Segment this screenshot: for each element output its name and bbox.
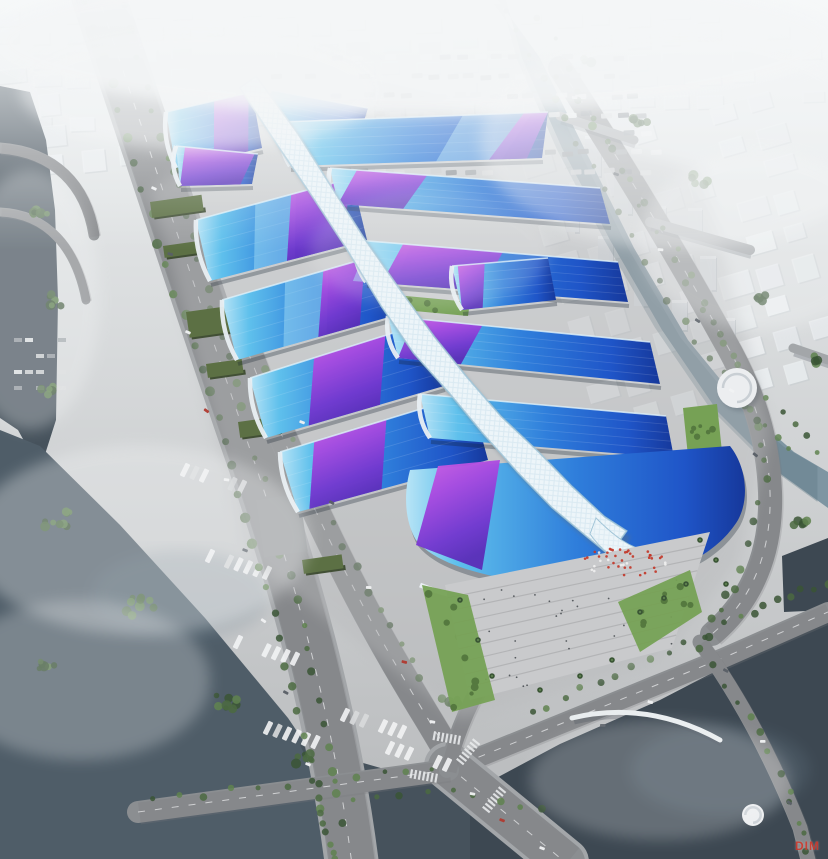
tree xyxy=(338,819,346,827)
tree xyxy=(749,517,757,525)
tree xyxy=(530,709,536,715)
tree xyxy=(721,619,727,625)
tree xyxy=(322,828,329,835)
plaza-figure xyxy=(623,625,625,627)
tree xyxy=(288,682,296,690)
tree xyxy=(745,540,752,547)
plaza-figure xyxy=(516,676,518,678)
tree xyxy=(708,614,716,622)
tree xyxy=(200,793,208,801)
scene-canvas xyxy=(0,0,828,859)
tree xyxy=(150,796,155,801)
tree xyxy=(751,610,759,618)
haze-cloud xyxy=(310,190,550,310)
crowd-dot xyxy=(619,548,622,551)
tree xyxy=(517,804,523,810)
crowd-dot xyxy=(644,572,647,575)
crowd-dot xyxy=(664,561,667,564)
tree xyxy=(759,602,767,610)
crowd-dot xyxy=(647,550,650,553)
crowd-dot xyxy=(612,562,615,565)
tree xyxy=(395,792,402,799)
crowd-dot xyxy=(629,552,632,555)
crowd-dot xyxy=(651,557,654,560)
plaza-figure xyxy=(488,630,490,632)
tree xyxy=(325,743,333,751)
plaza-figure xyxy=(576,606,578,608)
crowd-dot xyxy=(599,559,602,562)
garden-tree xyxy=(687,602,693,608)
garden-tree xyxy=(425,590,433,598)
crowd-dot xyxy=(606,549,609,552)
tree xyxy=(315,794,322,801)
tree xyxy=(755,500,760,505)
tree xyxy=(774,595,782,603)
courtyard-tree xyxy=(690,430,694,434)
plaza-figure xyxy=(509,675,511,677)
tree xyxy=(815,450,820,455)
crowd-dot xyxy=(593,565,596,568)
tree xyxy=(291,758,301,768)
tree xyxy=(276,635,283,642)
tree xyxy=(316,697,322,703)
palm-crown xyxy=(611,659,613,661)
palm-crown xyxy=(663,597,665,599)
tree xyxy=(709,661,716,668)
palm-crown xyxy=(491,675,493,677)
tree xyxy=(598,679,605,686)
tree xyxy=(811,587,817,593)
tree xyxy=(801,830,806,835)
tree xyxy=(722,684,727,689)
garden-tree xyxy=(681,601,688,608)
tree xyxy=(332,779,337,784)
plaza-figure xyxy=(501,589,503,591)
tree xyxy=(320,721,327,728)
tree xyxy=(763,475,771,483)
crowd-dot xyxy=(632,555,635,558)
tree xyxy=(309,778,315,784)
plaza-figure xyxy=(513,595,515,597)
tree xyxy=(307,667,315,675)
crowd-dot xyxy=(598,555,601,558)
tree xyxy=(320,820,326,826)
tree xyxy=(721,591,730,600)
tree xyxy=(736,565,744,573)
tree xyxy=(304,646,309,651)
garden-tree xyxy=(444,619,450,625)
crowd-dot xyxy=(653,566,656,569)
plaza-figure xyxy=(514,640,516,642)
tree xyxy=(285,783,292,790)
crowd-dot xyxy=(629,566,632,569)
crowd-dot xyxy=(606,551,609,554)
tree xyxy=(576,684,583,691)
crowd-dot xyxy=(607,559,610,562)
tree xyxy=(302,623,307,628)
garden-tree xyxy=(640,622,646,628)
tree xyxy=(803,432,810,439)
tree xyxy=(786,446,791,451)
tree xyxy=(735,700,740,705)
plaza-figure xyxy=(526,684,528,686)
crowd-dot xyxy=(617,565,620,568)
garden-tree xyxy=(461,654,468,661)
plaza-figure xyxy=(608,598,610,600)
crowd-dot xyxy=(605,555,608,558)
tree xyxy=(214,693,220,699)
tree xyxy=(788,789,794,795)
tree xyxy=(351,797,356,802)
tree xyxy=(681,639,687,645)
tree xyxy=(756,728,764,736)
palm-crown xyxy=(699,539,701,541)
tree xyxy=(719,608,724,613)
tree xyxy=(353,774,361,782)
plaza-figure xyxy=(671,643,673,645)
plaza-figure xyxy=(483,598,485,600)
crowd-dot xyxy=(623,574,626,577)
tree xyxy=(702,635,708,641)
garden-tree xyxy=(471,683,479,691)
plaza-figure xyxy=(560,613,562,615)
haze-cloud xyxy=(530,720,790,840)
palm-crown xyxy=(579,675,581,677)
crowd-dot xyxy=(660,555,663,558)
tree xyxy=(797,586,804,593)
crowd-dot xyxy=(648,556,651,559)
tree xyxy=(790,521,799,530)
tree xyxy=(374,794,379,799)
tree xyxy=(162,261,169,268)
plaza-figure xyxy=(548,600,550,602)
tree xyxy=(228,785,234,791)
crowd-dot xyxy=(649,554,652,557)
plaza-figure xyxy=(555,615,557,617)
crowd-dot xyxy=(586,556,589,559)
tree xyxy=(331,850,337,856)
tree xyxy=(272,610,279,617)
tree xyxy=(169,290,177,298)
crowd-dot xyxy=(626,562,629,565)
crowd-dot xyxy=(584,557,587,560)
tree xyxy=(305,749,315,759)
crowd-dot xyxy=(607,566,610,569)
garden-tree xyxy=(677,583,684,590)
tree xyxy=(317,810,324,817)
tree xyxy=(293,707,301,715)
aerial-rendering-exhibition-center: DIM xyxy=(0,0,828,859)
palm-crown xyxy=(459,599,461,601)
tree xyxy=(543,705,550,712)
tree xyxy=(696,645,704,653)
palm-crown xyxy=(539,689,541,691)
crowd-dot xyxy=(593,551,596,554)
crowd-dot xyxy=(614,555,617,558)
car xyxy=(366,586,372,589)
tree xyxy=(430,767,434,771)
tree xyxy=(797,821,802,826)
tree xyxy=(301,732,308,739)
tree xyxy=(328,767,337,776)
palm-crown xyxy=(685,583,687,585)
crowd-dot xyxy=(627,549,630,552)
tree xyxy=(315,780,322,787)
tree xyxy=(425,789,430,794)
crowd-dot xyxy=(621,559,624,562)
tree xyxy=(780,409,785,414)
tree xyxy=(793,421,799,427)
palm-crown xyxy=(715,559,717,561)
tree xyxy=(802,517,811,526)
tree xyxy=(787,593,794,600)
crowd-dot xyxy=(624,566,627,569)
tree xyxy=(497,798,505,806)
tree xyxy=(383,769,388,774)
courtyard-tree xyxy=(698,424,702,428)
tree xyxy=(451,788,456,793)
tree xyxy=(667,650,672,655)
tree xyxy=(731,585,739,593)
tree xyxy=(256,785,261,790)
tree xyxy=(327,842,333,848)
watermark-text: DIM xyxy=(795,839,820,853)
tree xyxy=(402,768,409,775)
tree xyxy=(232,695,241,704)
tree xyxy=(563,695,569,701)
palm-crown xyxy=(639,611,641,613)
garden-tree xyxy=(450,604,457,611)
tree xyxy=(738,614,743,619)
plaza-figure xyxy=(514,657,516,659)
tree xyxy=(763,395,769,401)
crowd-dot xyxy=(609,548,612,551)
tree xyxy=(748,713,755,720)
crowd-dot xyxy=(611,549,614,552)
tree xyxy=(332,789,341,798)
tree xyxy=(775,434,782,441)
plaza-figure xyxy=(572,600,574,602)
crowd-dot xyxy=(622,563,625,566)
garden-tree xyxy=(450,704,457,711)
crowd-dot xyxy=(624,551,627,554)
plaza-figure xyxy=(561,610,563,612)
tree xyxy=(228,704,237,713)
plaza-figure xyxy=(568,648,570,650)
crowd-dot xyxy=(591,568,594,571)
plaza-figure xyxy=(565,640,567,642)
plaza-figure xyxy=(613,635,615,637)
crowd-dot xyxy=(639,574,642,577)
courtyard-tree xyxy=(709,426,716,433)
garden-tree xyxy=(469,691,473,695)
crowd-dot xyxy=(620,564,623,567)
plaza-figure xyxy=(522,685,524,687)
palm-crown xyxy=(477,639,479,641)
haze-cloud xyxy=(20,30,380,150)
tree xyxy=(214,702,222,710)
watermark: DIM xyxy=(795,839,820,853)
crowd-dot xyxy=(598,551,601,554)
tree xyxy=(176,792,182,798)
crowd-dot xyxy=(593,570,596,573)
palm-crown xyxy=(725,583,727,585)
tree xyxy=(280,662,288,670)
courtyard-tree xyxy=(694,433,700,439)
plaza-figure xyxy=(534,594,536,596)
tree xyxy=(813,356,822,365)
crowd-dot xyxy=(654,570,657,573)
